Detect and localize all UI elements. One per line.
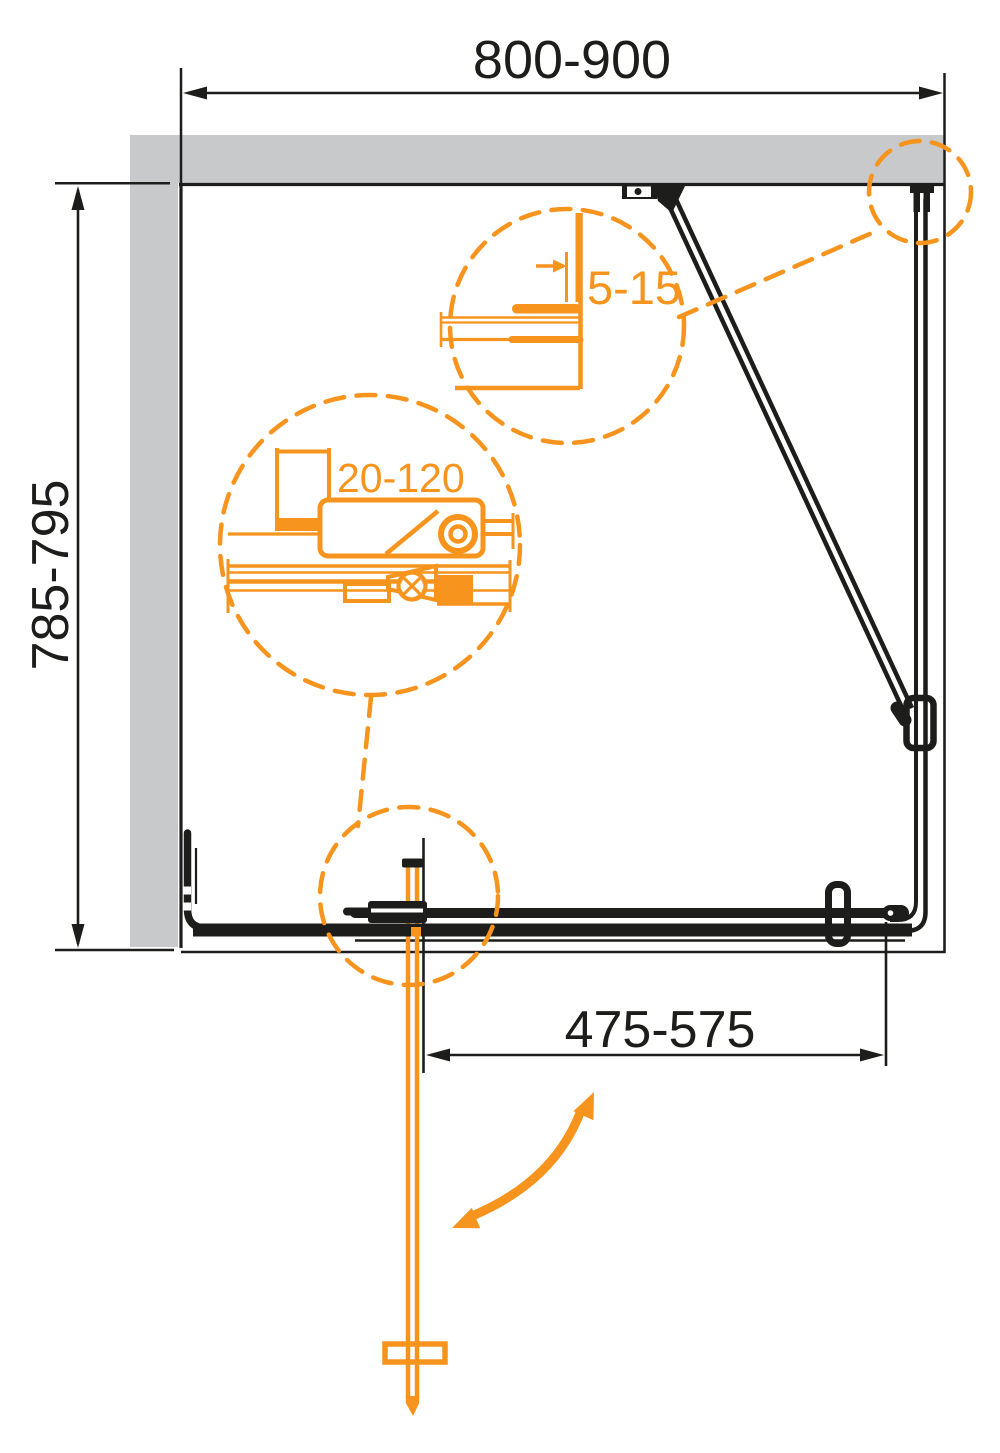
door-width-label: 475-575: [565, 1001, 756, 1059]
arrowhead-right: [860, 1049, 884, 1062]
rail-bar: [275, 518, 320, 531]
leader-arrowhead: [553, 260, 567, 273]
fixed-panel: [890, 184, 934, 931]
top-wall: [130, 135, 945, 183]
callout-connector-line: [358, 697, 371, 826]
profile-notch: [183, 887, 191, 895]
arrowhead-bottom: [72, 924, 85, 948]
wall-profile-adjustment-label: 5-15: [587, 261, 681, 314]
overall-depth-label: 785-795: [22, 480, 80, 671]
arrowhead-left: [183, 87, 207, 100]
glass-bar: [512, 304, 581, 314]
diagram-canvas: 800-900 785-795: [0, 0, 1000, 1453]
hinge-pin-icon: [635, 188, 642, 195]
panel-inner-line: [890, 199, 916, 920]
roller-icon: [441, 517, 475, 551]
clamp-plate: [345, 584, 389, 601]
swing-arc: [472, 1113, 580, 1216]
arrowhead-top: [72, 186, 85, 210]
door-pivot-assembly: [193, 859, 912, 937]
door-glass-line: [666, 199, 904, 712]
door-rail-marker: [411, 927, 421, 937]
arrowhead-right: [919, 87, 943, 100]
door-top-cap: [402, 859, 423, 868]
roller-hub-icon: [451, 527, 466, 542]
callout-connector-line: [679, 233, 872, 317]
arrowhead-left: [426, 1049, 450, 1062]
overall-width-label: 800-900: [473, 30, 671, 90]
detail-circle-extension: [220, 395, 520, 695]
detail-circle-wall-profile: [450, 209, 684, 443]
panel-wall-bracket: [910, 184, 934, 193]
door-tip: [406, 1396, 419, 1416]
enclosure-frame: [179, 183, 945, 953]
rail-end-pin: [882, 905, 909, 921]
left-wall: [130, 135, 178, 947]
door-glass-line: [674, 195, 912, 708]
detail-extension-drawing: 20-120: [228, 448, 513, 613]
pivot-block-slot: [371, 909, 423, 913]
door-swing-arrow: [452, 1092, 594, 1228]
extension-adjustment-label: 20-120: [337, 455, 465, 501]
housing-diagonal: [386, 511, 438, 554]
door-width-dimension: 475-575: [424, 838, 887, 1073]
panel-wall-bracket: [914, 193, 921, 212]
pin-hole: [888, 910, 894, 916]
shower-enclosure-plan: 800-900 785-795: [0, 0, 1000, 1453]
clamp-block: [437, 575, 473, 605]
panel-wall-bracket: [924, 193, 931, 212]
profile-notch: [183, 903, 191, 911]
panel-outer-line: [894, 199, 926, 931]
open-door: [385, 867, 445, 1416]
bottom-rail-band: [193, 924, 912, 937]
